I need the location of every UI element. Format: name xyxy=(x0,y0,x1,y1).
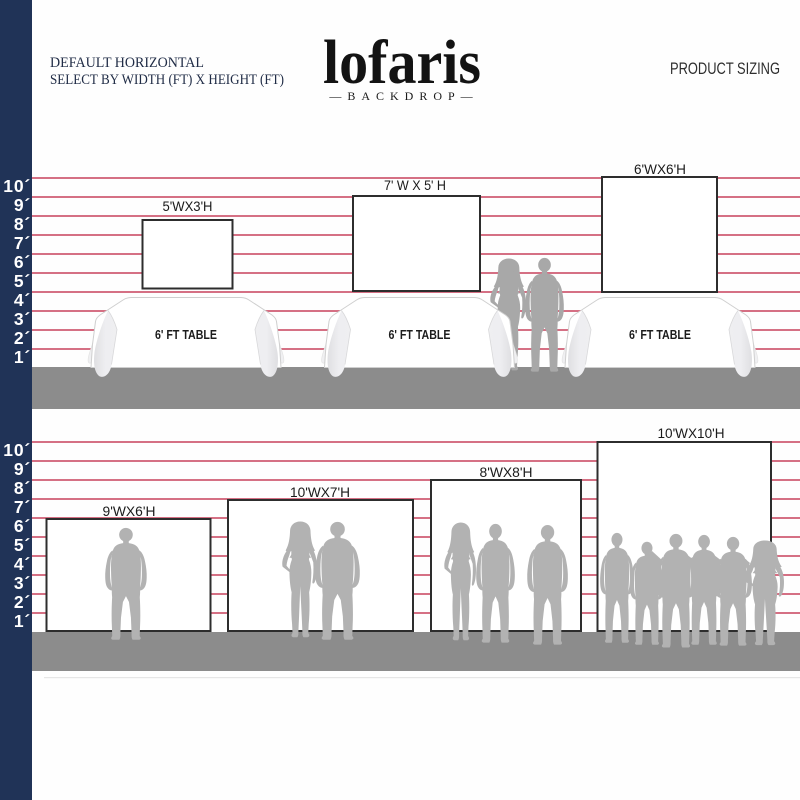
svg-text:—BACKDROP—: —BACKDROP— xyxy=(328,89,478,103)
svg-text:2´: 2´ xyxy=(14,592,31,612)
svg-text:6' FT TABLE: 6' FT TABLE xyxy=(155,328,217,342)
svg-text:6' FT TABLE: 6' FT TABLE xyxy=(629,328,691,342)
svg-text:10'WX10'H: 10'WX10'H xyxy=(658,426,725,441)
svg-text:8´: 8´ xyxy=(14,478,31,498)
svg-text:PRODUCT SIZING: PRODUCT SIZING xyxy=(670,59,780,78)
svg-text:3´: 3´ xyxy=(14,573,31,593)
svg-text:4´: 4´ xyxy=(14,554,31,574)
svg-text:6' FT TABLE: 6' FT TABLE xyxy=(389,328,451,342)
svg-text:3´: 3´ xyxy=(14,309,31,329)
svg-text:9´: 9´ xyxy=(14,459,31,479)
svg-text:10'WX7'H: 10'WX7'H xyxy=(290,485,350,500)
svg-text:5'WX3'H: 5'WX3'H xyxy=(163,199,213,214)
svg-text:5´: 5´ xyxy=(14,271,31,291)
svg-text:10´: 10´ xyxy=(3,440,31,460)
svg-text:5´: 5´ xyxy=(14,535,31,555)
svg-text:6´: 6´ xyxy=(14,252,31,272)
svg-text:1´: 1´ xyxy=(14,611,31,631)
svg-text:8'WX8'H: 8'WX8'H xyxy=(480,465,533,480)
svg-text:7' W X 5' H: 7' W X 5' H xyxy=(384,178,446,193)
svg-text:9'WX6'H: 9'WX6'H xyxy=(103,504,156,519)
svg-text:6'WX6'H: 6'WX6'H xyxy=(634,162,686,177)
svg-text:7´: 7´ xyxy=(14,497,31,517)
svg-text:SELECT BY WIDTH (FT) X HEIGHT: SELECT BY WIDTH (FT) X HEIGHT (FT) xyxy=(50,72,284,88)
svg-text:9´: 9´ xyxy=(14,195,31,215)
svg-text:7´: 7´ xyxy=(14,233,31,253)
svg-text:2´: 2´ xyxy=(14,328,31,348)
svg-text:8´: 8´ xyxy=(14,214,31,234)
svg-text:1´: 1´ xyxy=(14,347,31,367)
svg-text:4´: 4´ xyxy=(14,290,31,310)
svg-text:10´: 10´ xyxy=(3,176,31,196)
svg-text:6´: 6´ xyxy=(14,516,31,536)
svg-text:DEFAULT HORIZONTAL: DEFAULT HORIZONTAL xyxy=(50,55,204,71)
svg-text:lofaris: lofaris xyxy=(323,29,481,97)
